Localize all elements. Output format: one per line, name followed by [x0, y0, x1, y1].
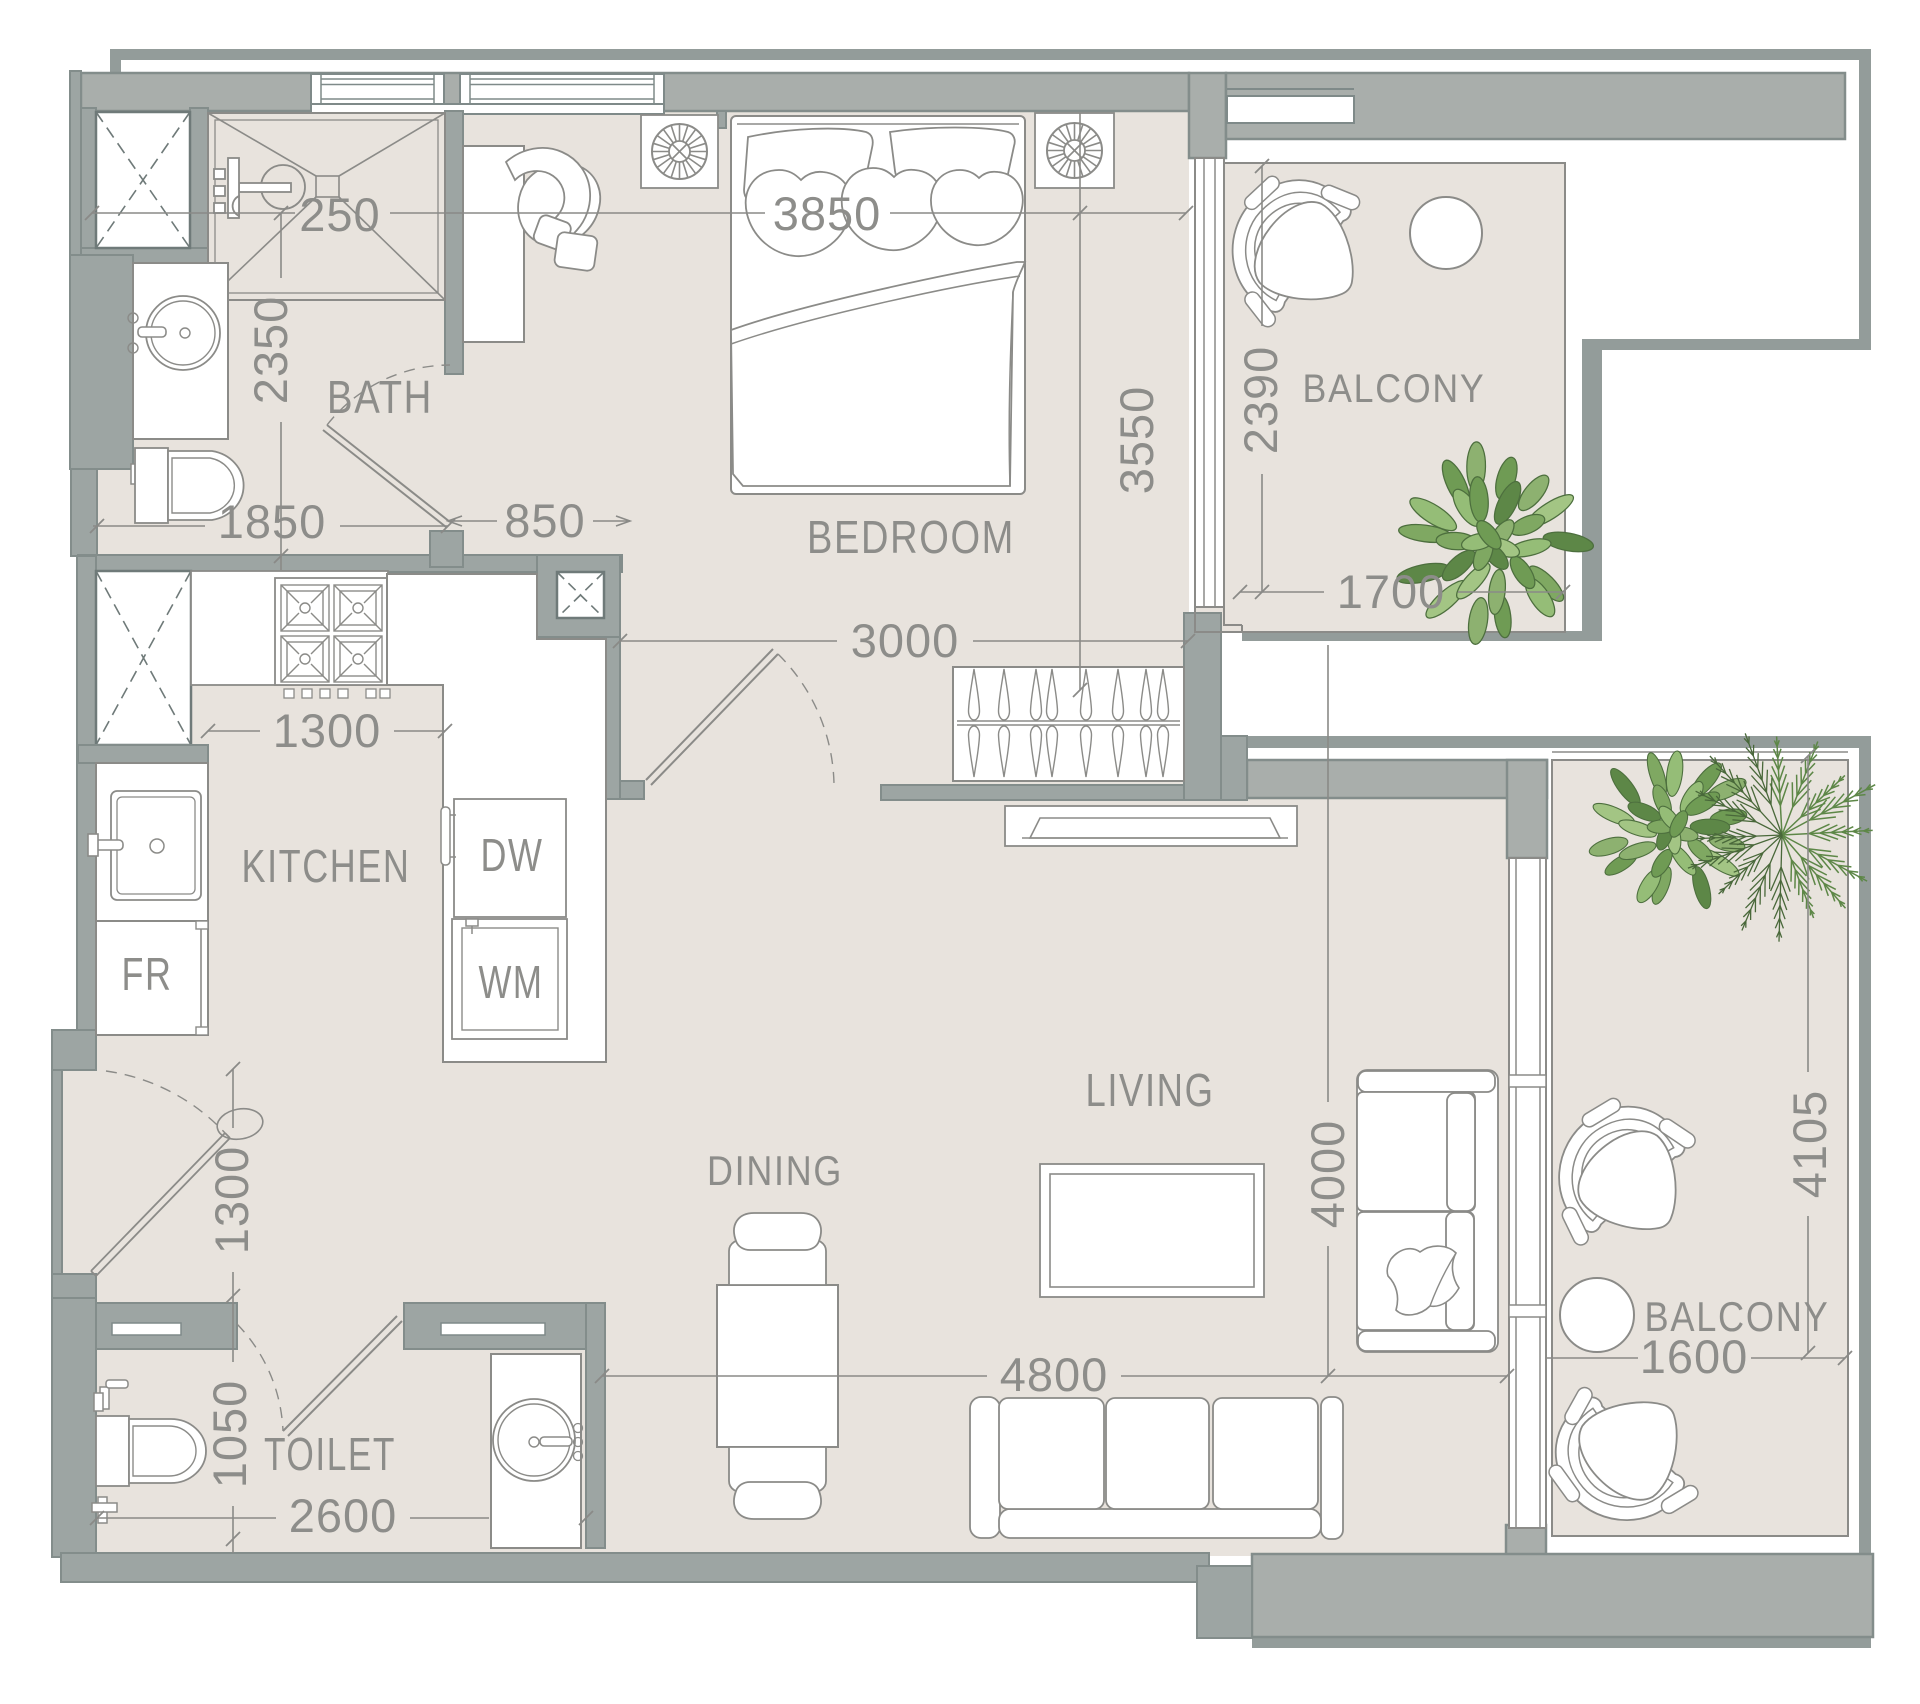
svg-text:250: 250: [299, 188, 380, 241]
svg-text:3850: 3850: [773, 187, 882, 240]
svg-text:LIVING: LIVING: [1086, 1064, 1215, 1116]
svg-text:4000: 4000: [1301, 1120, 1354, 1229]
svg-text:3000: 3000: [851, 614, 960, 667]
svg-text:BEDROOM: BEDROOM: [807, 511, 1015, 563]
svg-text:BALCONY: BALCONY: [1645, 1293, 1830, 1340]
svg-text:2350: 2350: [244, 296, 297, 405]
svg-text:1700: 1700: [1337, 565, 1446, 618]
svg-text:WM: WM: [479, 956, 544, 1008]
svg-text:1850: 1850: [218, 495, 327, 548]
svg-text:2390: 2390: [1234, 346, 1287, 455]
svg-text:1300: 1300: [205, 1146, 258, 1255]
svg-text:BATH: BATH: [327, 371, 433, 423]
svg-text:DW: DW: [481, 829, 544, 881]
svg-text:BALCONY: BALCONY: [1303, 367, 1486, 411]
svg-text:KITCHEN: KITCHEN: [242, 840, 411, 892]
svg-text:TOILET: TOILET: [264, 1428, 396, 1480]
svg-text:DINING: DINING: [707, 1147, 843, 1194]
svg-text:4105: 4105: [1783, 1090, 1836, 1199]
svg-text:FR: FR: [122, 948, 173, 1000]
svg-text:850: 850: [504, 494, 585, 547]
svg-text:4800: 4800: [1000, 1348, 1109, 1401]
svg-text:1050: 1050: [203, 1380, 256, 1489]
svg-text:3550: 3550: [1110, 386, 1163, 495]
svg-text:2600: 2600: [289, 1489, 398, 1542]
svg-text:1300: 1300: [273, 704, 382, 757]
